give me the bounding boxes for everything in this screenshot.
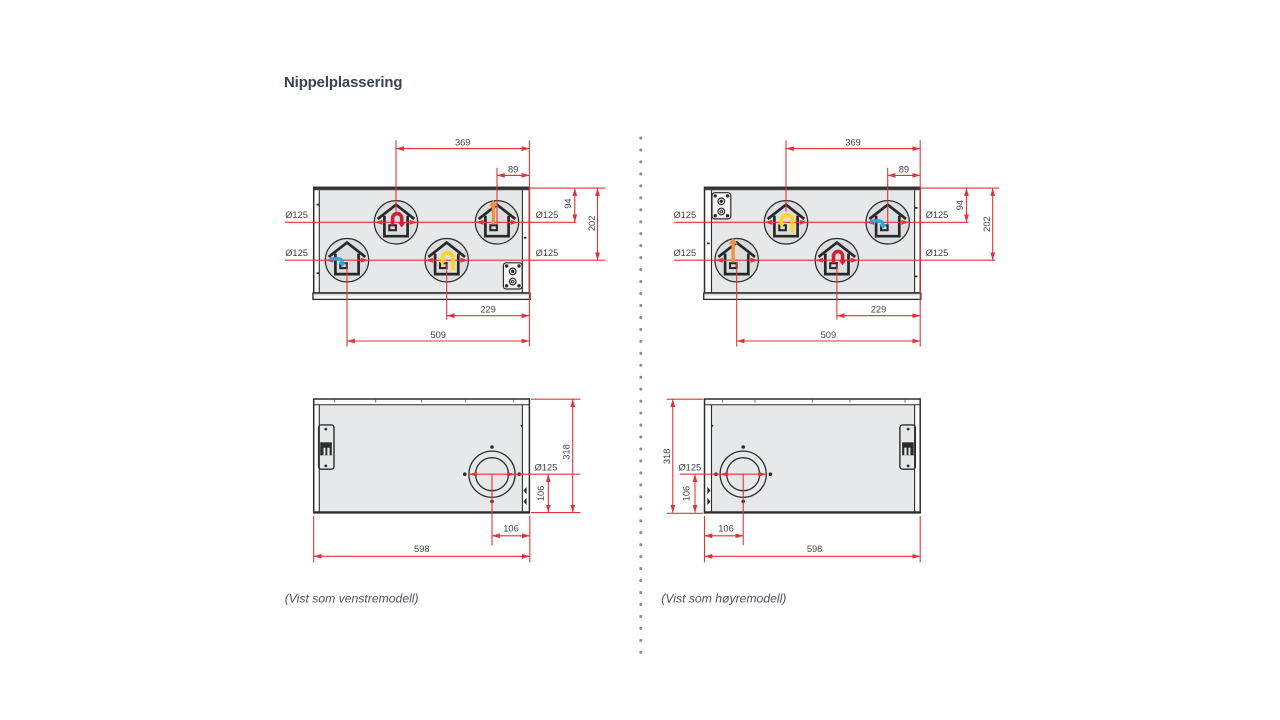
svg-text:106: 106 (536, 486, 546, 502)
svg-text:Ø125: Ø125 (926, 248, 949, 258)
svg-text:Ø125: Ø125 (926, 210, 949, 220)
svg-text:Ø125: Ø125 (673, 248, 696, 258)
svg-text:229: 229 (480, 305, 496, 315)
svg-text:Ø125: Ø125 (678, 462, 701, 472)
svg-text:202: 202 (982, 216, 992, 232)
svg-text:89: 89 (508, 164, 518, 174)
svg-text:106: 106 (682, 486, 692, 502)
svg-text:Ø125: Ø125 (536, 248, 559, 258)
svg-text:Ø125: Ø125 (536, 210, 559, 220)
svg-text:318: 318 (662, 449, 672, 465)
svg-text:(Vist som høyremodell): (Vist som høyremodell) (661, 591, 786, 605)
svg-text:Ø125: Ø125 (285, 248, 308, 258)
svg-text:Nippelplassering: Nippelplassering (284, 75, 402, 91)
svg-text:598: 598 (807, 544, 823, 554)
svg-text:369: 369 (845, 138, 861, 148)
svg-text:94: 94 (955, 200, 965, 210)
svg-text:106: 106 (503, 523, 519, 533)
svg-text:Ø125: Ø125 (285, 210, 308, 220)
svg-text:(Vist som venstremodell): (Vist som venstremodell) (285, 591, 419, 605)
svg-text:509: 509 (821, 330, 837, 340)
svg-text:598: 598 (414, 544, 430, 554)
svg-text:318: 318 (562, 444, 572, 460)
svg-text:202: 202 (587, 216, 597, 232)
svg-text:229: 229 (871, 305, 887, 315)
svg-text:94: 94 (563, 198, 573, 208)
svg-text:509: 509 (430, 330, 446, 340)
svg-text:369: 369 (455, 138, 471, 148)
svg-text:Ø125: Ø125 (673, 210, 696, 220)
svg-text:Ø125: Ø125 (535, 462, 558, 472)
svg-text:89: 89 (899, 164, 909, 174)
svg-text:106: 106 (718, 523, 734, 533)
